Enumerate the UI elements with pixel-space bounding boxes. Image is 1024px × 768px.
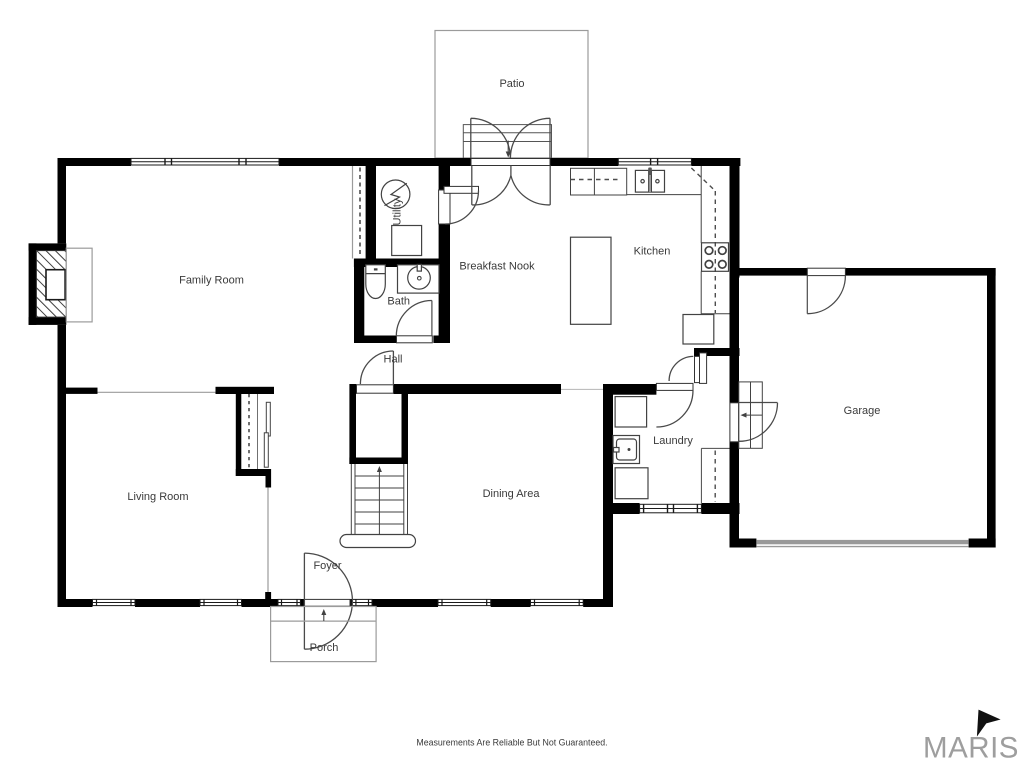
svg-text:Kitchen: Kitchen (634, 246, 671, 258)
svg-text:Patio: Patio (499, 78, 524, 90)
svg-text:Breakfast Nook: Breakfast Nook (459, 261, 535, 273)
svg-text:Bath: Bath (387, 295, 410, 307)
svg-text:MARIS: MARIS (923, 732, 1019, 765)
svg-text:Porch: Porch (310, 642, 339, 654)
svg-text:Living Room: Living Room (127, 491, 188, 503)
svg-text:Hall: Hall (384, 354, 403, 366)
svg-text:Utility: Utility (392, 198, 404, 225)
svg-text:Foyer: Foyer (313, 560, 341, 572)
svg-text:Laundry: Laundry (653, 435, 693, 447)
svg-text:Dining Area: Dining Area (483, 488, 541, 500)
svg-text:Garage: Garage (844, 405, 881, 417)
svg-text:Measurements Are Reliable But: Measurements Are Reliable But Not Guaran… (416, 738, 607, 748)
svg-text:Family Room: Family Room (179, 275, 244, 287)
